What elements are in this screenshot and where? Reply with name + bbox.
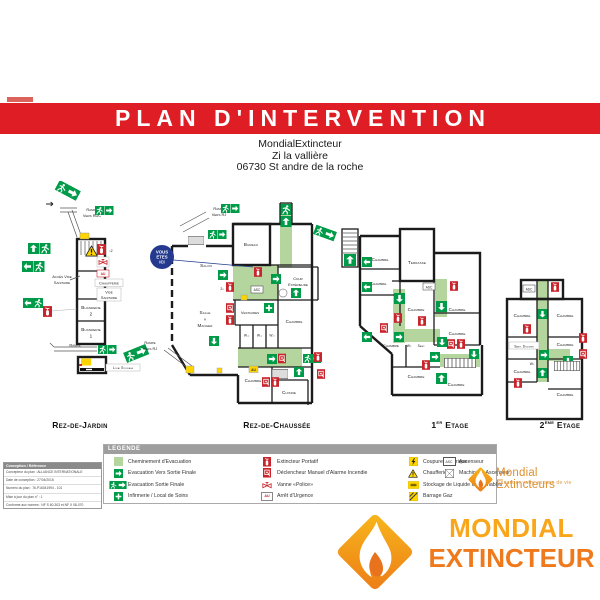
- arrow-up-icon: [291, 288, 301, 298]
- room-label: Rampe: [144, 340, 155, 345]
- extinguisher-icon: [394, 313, 402, 323]
- arrow-left-icon: [362, 257, 372, 267]
- title-banner: PLAN D'INTERVENTION: [0, 103, 600, 134]
- label-connector: [52, 309, 77, 311]
- arrow-left-icon: [23, 298, 33, 308]
- elevator-label: ASC: [526, 287, 533, 291]
- exit-sign-icon: [313, 225, 337, 242]
- room-label: Chambre: [448, 382, 465, 387]
- arrow-right-icon: [539, 350, 549, 360]
- extinguisher-icon: [271, 377, 279, 387]
- manual-alarm-icon: [317, 369, 325, 379]
- room-label: W.c: [244, 334, 250, 338]
- evacuation-path-swatch-icon: [108, 457, 128, 466]
- arrow-down-icon: [209, 336, 219, 346]
- info-line: Mise à jour du plan n° : 1: [4, 494, 101, 502]
- extinguisher-icon: [523, 324, 531, 334]
- arrow-up-icon: [436, 373, 447, 384]
- you-are-here-text: ICI: [159, 260, 165, 265]
- page-title: PLAN D'INTERVENTION: [109, 105, 491, 132]
- ramp-drawing: [46, 202, 81, 237]
- legend-item: Extincteur Portatif: [257, 456, 402, 468]
- stairs-icon: [554, 361, 579, 371]
- legend-item: AU Arrêt d'Urgence: [257, 491, 402, 503]
- boiler-room-warning-icon: [403, 469, 423, 478]
- legend-item: Cheminement d'Evacuation: [108, 456, 256, 468]
- room-label: Vestiaires: [241, 310, 259, 315]
- room-label: Salle: [200, 310, 211, 315]
- walls: [342, 229, 482, 395]
- arrow-down-icon: [394, 293, 405, 304]
- stairs-icon: [444, 358, 475, 368]
- room-label: 2: [90, 312, 93, 317]
- room-label: Manger: [197, 323, 213, 328]
- flammable-liquid-storage-icon: [403, 481, 423, 489]
- legend-column-fire-equipment: Extincteur Portatif Déclencheur Manuel d…: [257, 456, 402, 502]
- arrow-up-icon: [344, 254, 356, 266]
- room-label: Terrasse: [408, 260, 426, 265]
- exit-man-icon: [208, 230, 217, 239]
- room-label: Cour: [293, 276, 303, 281]
- brand-logo-large: MONDIAL EXTINCTEUR: [333, 506, 597, 598]
- you-are-here-pointer: [174, 260, 254, 267]
- extinguisher-icon: [97, 244, 106, 255]
- storage-slot: [86, 369, 92, 370]
- flame-diamond-icon: [467, 466, 494, 493]
- exit-man-icon: [98, 345, 107, 354]
- room-label: Bureau: [244, 242, 258, 247]
- room-label: Chambre: [557, 392, 574, 397]
- floorplan-1er-etage: Chambre Chambre Terrasse ASC Chambre Cha…: [336, 223, 484, 425]
- address-line3: 06730 St andre de la roche: [0, 162, 600, 174]
- room-label: Salon: [200, 263, 212, 268]
- exit-man-icon: [95, 206, 104, 215]
- floor-title-rez-de-jardin: Rez-de-Jardin: [30, 420, 130, 430]
- room-label: Chambre: [557, 342, 574, 347]
- boiler-warning-icon: [86, 246, 98, 256]
- legend-item: Evacuation Vers Sortie Finale: [108, 468, 256, 480]
- info-line: Concepteur du plan : ALLIANCE INTERNATIO…: [4, 469, 101, 477]
- manual-alarm-icon: [380, 323, 388, 333]
- well-mark: [279, 289, 287, 297]
- room-label: Chambre: [383, 343, 399, 348]
- floor-title-2eme-etage: 2ème Etage: [520, 420, 600, 430]
- room-label: Chambre: [370, 281, 387, 286]
- elevator-machinery-icon: [439, 469, 459, 478]
- room-label: Chambre: [449, 307, 466, 312]
- legend-item: Evacuation Sortie Finale: [108, 479, 256, 491]
- emergency-stop-icon: AU: [257, 492, 277, 501]
- room-label: Extérieure: [288, 282, 308, 287]
- ramp-drawing: [180, 212, 209, 232]
- exit-man-icon: [40, 243, 51, 254]
- brand-tagline: Sécuriser votre espace de vie: [497, 480, 572, 486]
- emergency-stop-label: AU: [251, 368, 256, 372]
- arrow-right-icon: [108, 345, 117, 354]
- extinguisher-icon: [226, 315, 234, 325]
- extinguisher-icon: [43, 306, 52, 317]
- room-label: Chambre: [408, 307, 425, 312]
- ramp-drawing: [164, 348, 192, 368]
- arrow-left-icon: [22, 261, 33, 272]
- info-line: Conforme aux normes : NF S 60-303 et NF …: [4, 502, 101, 509]
- arrow-down-icon: [469, 349, 479, 359]
- gas-shutoff-icon: [403, 492, 423, 501]
- room-label: Wc: [530, 362, 535, 366]
- manual-alarm-icon: [278, 354, 286, 364]
- arrow-left-icon: [362, 332, 372, 342]
- arrow-down-icon: [436, 301, 447, 312]
- first-aid-icon: [264, 303, 274, 313]
- arrow-right-icon: [271, 274, 281, 284]
- elevator-label: ASC: [254, 288, 261, 292]
- gas-shutoff-icon: [186, 366, 194, 373]
- floor-title-1er-etage: 1er Etage: [410, 420, 490, 430]
- exit-man-icon: [33, 298, 43, 308]
- floorplan-rez-de-chaussee: Rampe Vers RJ Bureau VOUS ETES ICI Salon…: [122, 186, 337, 421]
- room-label: Buanderie: [81, 327, 100, 332]
- room-label: Wc: [407, 344, 412, 348]
- floor-title-rez-de-chaussee: Rez-de-Chaussée: [227, 420, 327, 430]
- exit-sign-icon: [55, 181, 81, 201]
- legend-column-evacuation: Cheminement d'Evacuation Evacuation Vers…: [108, 456, 256, 502]
- room-label: Chaufferie: [99, 281, 119, 286]
- room-label: Chambre: [372, 257, 389, 262]
- room-label: Accès Vide: [52, 274, 72, 279]
- room-label: Chambre: [514, 369, 531, 374]
- power-cut-icon: [217, 368, 222, 373]
- extinguisher-icon: [314, 352, 322, 362]
- elevator-label: ASC: [426, 285, 433, 289]
- evacuation-arrow-icon: [108, 469, 128, 478]
- arrow-right-icon: [218, 230, 227, 239]
- address-line1: MondialExtincteur: [0, 139, 600, 151]
- exit-man-icon: [221, 204, 230, 213]
- legend-panel: LEGENDE Cheminement d'Evacuation Evacuat…: [103, 444, 497, 504]
- room-label: Sanit.: [418, 344, 426, 348]
- scan-corner-mark: [7, 97, 33, 102]
- room-label: Sanit. Douches: [514, 344, 534, 348]
- room-label: Rampe: [69, 343, 80, 348]
- arrow-up-icon: [281, 216, 292, 227]
- info-line: Numéro du plan : 76-P16041994 - 101: [4, 485, 101, 493]
- room-label: 1: [90, 334, 93, 339]
- brand-name: Mondial Extincteurs: [496, 467, 599, 491]
- exit-man-icon: [303, 354, 312, 363]
- police-valve-icon: [257, 481, 277, 490]
- power-cut-icon: [241, 295, 247, 300]
- legend-item: Vanne «Police»: [257, 479, 402, 491]
- brand-logo-small: Mondial Extincteurs Sécuriser votre espa…: [467, 464, 599, 500]
- extinguisher-icon: [226, 282, 234, 292]
- room-label: Sanitaire: [54, 280, 70, 285]
- intervention-plan-page: PLAN D'INTERVENTION MondialExtincteur Zi…: [0, 0, 600, 600]
- extinguisher-icon: [450, 281, 458, 291]
- extinguisher-icon: [579, 333, 587, 343]
- exit-man-icon: [281, 204, 292, 215]
- arrow-down-icon: [538, 309, 548, 319]
- entry-grate: [188, 236, 204, 245]
- legend-item: Déclencheur Manuel d'Alarme Incendie: [257, 468, 402, 480]
- extinguisher-icon: [418, 316, 426, 326]
- power-cut-icon: [403, 457, 423, 466]
- room-label: Chambre: [514, 313, 531, 318]
- room-label: Chambre: [408, 374, 425, 379]
- brand-word-extincteur: EXTINCTEUR: [426, 543, 597, 573]
- room-label: W.c: [257, 334, 263, 338]
- legend-header: LEGENDE: [104, 445, 496, 454]
- room-label: Vide: [105, 290, 113, 295]
- conception-info-box: Conception / Référence Concepteur du pla…: [3, 462, 102, 509]
- manual-fire-alarm-icon: [257, 468, 277, 478]
- extinguisher-icon: [422, 360, 430, 370]
- room-label: Sanitaire: [101, 295, 117, 300]
- floorplan-2eme-etage: ASC Chambre Chambre Chambre Sanit. Douch…: [484, 249, 598, 434]
- arrow-up-icon: [28, 243, 39, 254]
- emergency-stop-label: AU: [101, 272, 106, 276]
- room-label: Buanderie: [81, 305, 100, 310]
- extinguisher-icon: [514, 378, 522, 388]
- manual-alarm-icon: [226, 303, 234, 313]
- gas-shutoff-icon: [81, 359, 91, 366]
- arrow-right-icon: [218, 270, 228, 280]
- extinguisher-count: 2x: [220, 287, 224, 291]
- manual-alarm-icon: [262, 377, 270, 387]
- site-address: MondialExtincteur Zi la vallière 06730 S…: [0, 139, 600, 174]
- extinguisher-icon: [457, 339, 465, 349]
- first-aid-cross-icon: [108, 492, 128, 501]
- arrow-up-icon: [538, 368, 548, 378]
- flame-diamond-icon: [333, 510, 417, 594]
- arrow-up-icon: [294, 367, 304, 377]
- arrow-right-icon: [267, 354, 277, 364]
- arrow-down-icon: [437, 337, 447, 347]
- room-label: Chambre: [245, 378, 262, 383]
- room-label: Chambre: [557, 313, 574, 318]
- manual-alarm-icon: [447, 339, 455, 349]
- room-label: à: [204, 317, 206, 322]
- arrow-right-icon: [430, 352, 440, 362]
- room-label: Chambre: [286, 319, 303, 324]
- arrow-right-icon: [394, 332, 404, 342]
- room-label: Vers RJ: [143, 346, 158, 351]
- info-line: Date de conception : 27/04/2016: [4, 477, 101, 485]
- portable-extinguisher-icon: [257, 457, 277, 467]
- arrow-right-icon: [105, 206, 114, 215]
- exit-man-icon: [34, 261, 45, 272]
- storage-mark: [79, 364, 82, 366]
- extinguisher-count: x2: [109, 249, 112, 253]
- arrow-left-icon: [362, 282, 372, 292]
- room-label: W.c: [269, 334, 275, 338]
- arrow-right-icon: [231, 204, 240, 213]
- elevator-icon: ASC: [439, 457, 459, 466]
- power-cut-icon: [80, 233, 89, 239]
- legend-item: Infirmerie / Local de Soins: [108, 491, 256, 503]
- room-label: Chambre: [449, 331, 466, 336]
- extinguisher-icon: [551, 282, 559, 292]
- extinguisher-icon: [254, 267, 262, 277]
- brand-word-mondial: MONDIAL: [426, 513, 597, 543]
- evacuation-final-exit-icon: [108, 481, 128, 489]
- manual-alarm-icon: [579, 349, 587, 359]
- stairs-icon: [343, 233, 357, 253]
- room-label: Cuisine: [282, 390, 296, 395]
